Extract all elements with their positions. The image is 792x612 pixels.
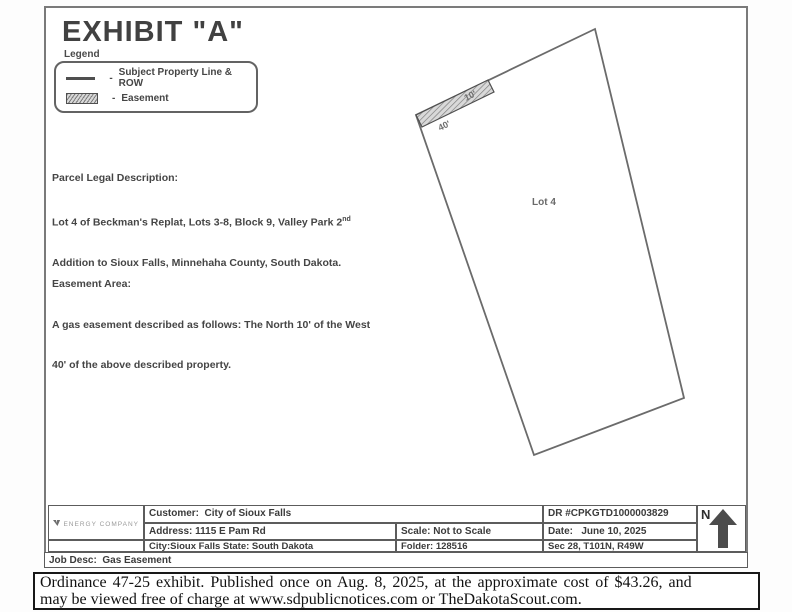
city-state-cell: City:Sioux Falls State: South Dakota <box>144 540 396 552</box>
legend-label: Legend <box>64 49 100 60</box>
easement-area-line2: 40' of the above described property. <box>52 359 370 373</box>
legend-item-label: Easement <box>121 93 168 104</box>
legend-item-easement: - Easement <box>66 91 169 105</box>
legend-box: - Subject Property Line & ROW - Easement <box>54 61 258 113</box>
lot4-property-boundary <box>416 29 684 455</box>
ordinal-superscript: nd <box>342 216 351 223</box>
scale-cell: Scale: Not to Scale <box>396 523 543 540</box>
parcel-legal-heading: Parcel Legal Description: <box>52 172 351 186</box>
address-cell: Address: 1115 E Pam Rd <box>144 523 396 540</box>
lot-label: Lot 4 <box>532 197 556 208</box>
easement-area-line1: A gas easement described as follows: The… <box>52 319 370 333</box>
north-arrow-icon <box>708 508 742 550</box>
parcel-map-drawing: 40' 10' Lot 4 <box>382 22 702 472</box>
section-township-range-cell: Sec 28, T101N, R49W <box>543 540 697 552</box>
midamerican-logo-text: MIDAMERICAN ENERGY COMPANY <box>63 505 139 540</box>
midamerican-logo-icon <box>53 514 60 532</box>
date-cell: Date: June 10, 2025 <box>543 523 697 540</box>
legend-dash: - <box>109 73 112 84</box>
scanned-public-notice-page: EXHIBIT "A" Legend - Subject Property Li… <box>0 0 792 612</box>
job-desc-cell: Job Desc: Gas Easement <box>44 552 748 568</box>
midamerican-logo-cell: MIDAMERICAN ENERGY COMPANY <box>48 505 144 540</box>
folder-cell: Folder: 128516 <box>396 540 543 552</box>
customer-cell: Customer: City of Sioux Falls <box>144 505 543 523</box>
north-arrow-cell: N <box>697 505 746 552</box>
legend-dash: - <box>112 93 115 104</box>
caption-line-1: Ordinance 47-25 exhibit. Published once … <box>40 575 753 592</box>
titleblock-empty-cell <box>48 540 144 552</box>
easement-hatch-swatch <box>66 93 98 104</box>
publication-caption-box: Ordinance 47-25 exhibit. Published once … <box>33 572 760 610</box>
caption-line-2: may be viewed free of charge at www.sdpu… <box>40 592 753 609</box>
parcel-legal-line1: Lot 4 of Beckman's Replat, Lots 3-8, Blo… <box>52 213 351 230</box>
legend-item-property-line: - Subject Property Line & ROW <box>66 71 256 85</box>
easement-area-heading: Easement Area: <box>52 278 370 292</box>
dr-number-cell: DR #CPKGTD1000003829 <box>543 505 697 523</box>
property-line-swatch <box>66 77 95 80</box>
easement-area-description: Easement Area: A gas easement described … <box>52 251 370 400</box>
exhibit-sheet: EXHIBIT "A" Legend - Subject Property Li… <box>44 6 748 568</box>
exhibit-title: EXHIBIT "A" <box>62 16 244 49</box>
legend-item-label: Subject Property Line & ROW <box>119 67 256 89</box>
